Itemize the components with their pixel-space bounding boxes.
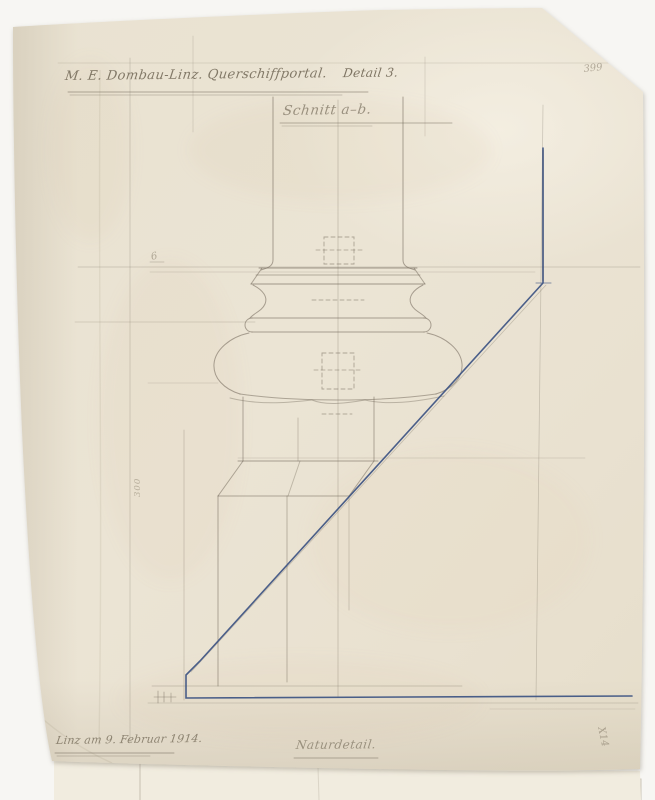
detail-number: Detail 3.	[342, 66, 399, 81]
drawing-title: M. E. Dombau-Linz. Querschiffportal.Deta…	[64, 66, 399, 85]
scanned-architectural-drawing: M. E. Dombau-Linz. Querschiffportal.Deta…	[0, 0, 655, 800]
margin-measure: 300	[133, 478, 143, 497]
sheet-number: 399	[583, 62, 603, 75]
scale-label: Naturdetail.	[295, 737, 377, 752]
section-label: Schnitt a–b.	[282, 101, 373, 119]
title-text: M. E. Dombau-Linz. Querschiffportal.	[64, 66, 328, 84]
edge-mark: X14	[595, 726, 610, 748]
inscription-layer: M. E. Dombau-Linz. Querschiffportal.Deta…	[0, 0, 655, 800]
date-line: Linz am 9. Februar 1914.	[55, 732, 203, 747]
margin-mark: 6	[150, 251, 159, 263]
